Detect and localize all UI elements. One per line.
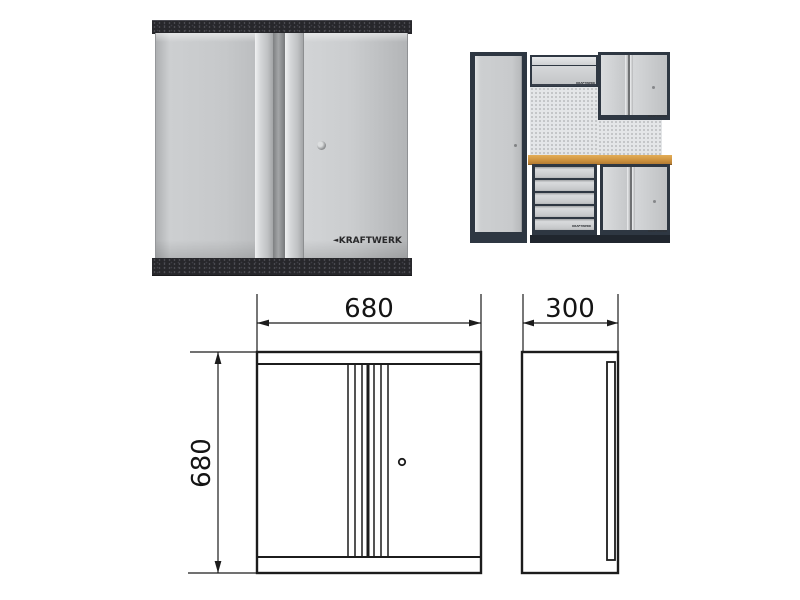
brand-mini-logo: KRAFTWERK: [648, 115, 667, 118]
door-gap: [273, 33, 285, 258]
brand-mini-logo: KRAFTWERK: [648, 230, 667, 233]
arrowhead-right-icon: [607, 320, 618, 327]
drawer-cabinet: KRAFTWERK: [532, 164, 597, 235]
lock-icon: [317, 141, 326, 150]
side-view-drawing: 300: [522, 294, 618, 573]
dim-depth-label: 300: [545, 294, 595, 324]
drawer-front: KRAFTWERK: [535, 219, 594, 230]
right-door: ◄KRAFTWERK: [303, 33, 407, 258]
cabinet-body: ◄KRAFTWERK: [155, 33, 408, 258]
arrowhead-left-icon: [257, 320, 269, 327]
small-wall-cabinet: KRAFTWERK: [530, 55, 598, 87]
pegboard-panel: [530, 87, 598, 155]
handle-strip-right: [285, 33, 303, 258]
handle-strip-left: [255, 33, 273, 258]
drawer-front: [535, 167, 594, 178]
drawer-front: [535, 206, 594, 217]
right-door: [635, 167, 667, 230]
base-cabinet: KRAFTWERK: [600, 164, 670, 235]
arrowhead-left-icon: [523, 320, 534, 327]
pegboard-panel: [598, 120, 662, 155]
dim-height-label: 680: [187, 438, 217, 488]
cabinet-outline: [257, 352, 481, 573]
cabinet-side-outline: [522, 352, 618, 573]
dim-width-label: 680: [344, 294, 394, 324]
tall-locker-door: [475, 56, 522, 232]
workshop-photo: KRAFTWERK KRAFTWERK: [470, 52, 672, 243]
brand-mini-logo: KRAFTWERK: [572, 225, 591, 228]
small-wall-cabinet-lid: [532, 57, 596, 65]
lock-icon: [514, 144, 517, 147]
cabinet-bottom-rail: [152, 258, 412, 276]
arrowhead-right-icon: [469, 320, 481, 327]
double-wall-cabinet: KRAFTWERK: [598, 52, 670, 120]
door-profile: [607, 362, 615, 560]
brand-text: KRAFTWERK: [339, 236, 402, 246]
left-door: [156, 33, 255, 258]
drawer-stack: KRAFTWERK: [535, 167, 594, 230]
plinth: [530, 235, 670, 243]
front-view-drawing: 680 680: [187, 294, 481, 573]
right-door: [633, 55, 667, 115]
drawer-front: [535, 193, 594, 204]
lock-icon: [653, 200, 656, 203]
product-photo: ◄KRAFTWERK: [152, 20, 412, 276]
handle-strip-lines: [348, 364, 388, 557]
brand-logo: ◄KRAFTWERK: [333, 236, 403, 246]
base-cabinet-doors: [603, 167, 667, 230]
lock-icon: [652, 86, 655, 89]
brand-arrow-icon: ◄: [333, 236, 338, 244]
page: ◄KRAFTWERK KRAFTWERK: [0, 0, 800, 600]
lock-icon: [399, 459, 405, 465]
double-wall-cabinet-doors: [601, 55, 667, 115]
left-door: [603, 167, 627, 230]
brand-mini-logo: KRAFTWERK: [576, 82, 595, 85]
left-door: [601, 55, 625, 115]
arrowhead-up-icon: [215, 352, 222, 364]
tall-locker: [470, 52, 527, 243]
arrowhead-down-icon: [215, 561, 222, 573]
cabinet-top-rail: [152, 20, 412, 34]
drawer-front: [535, 180, 594, 191]
